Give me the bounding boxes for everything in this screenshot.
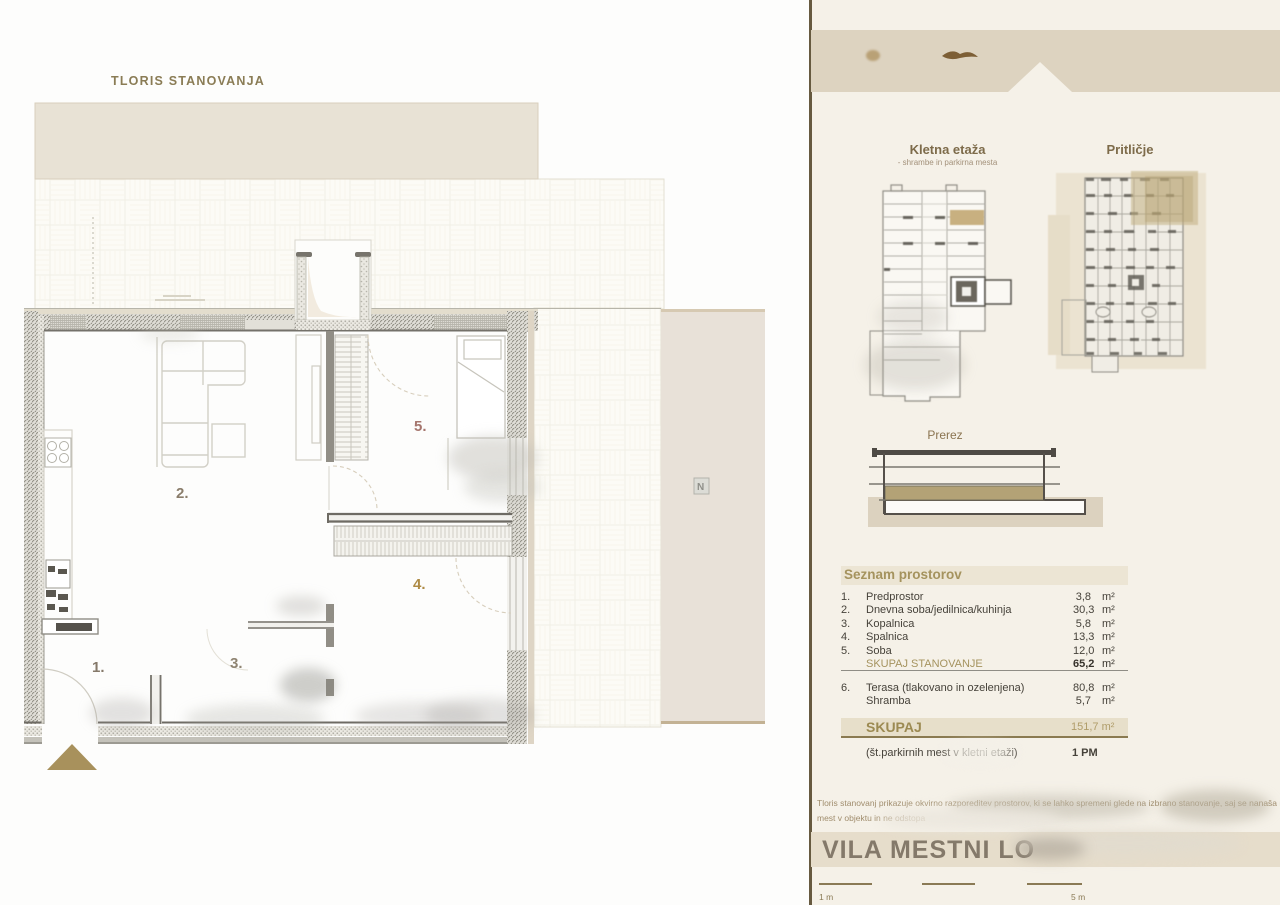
svg-text:4.: 4.: [413, 576, 426, 593]
svg-text:5.: 5.: [414, 418, 427, 435]
svg-text:2.: 2.: [176, 485, 189, 502]
svg-text:N: N: [697, 482, 704, 493]
svg-text:1.: 1.: [92, 659, 105, 676]
svg-text:1 m: 1 m: [819, 892, 833, 902]
svg-text:3.: 3.: [230, 655, 243, 672]
svg-text:5 m: 5 m: [1071, 892, 1085, 902]
